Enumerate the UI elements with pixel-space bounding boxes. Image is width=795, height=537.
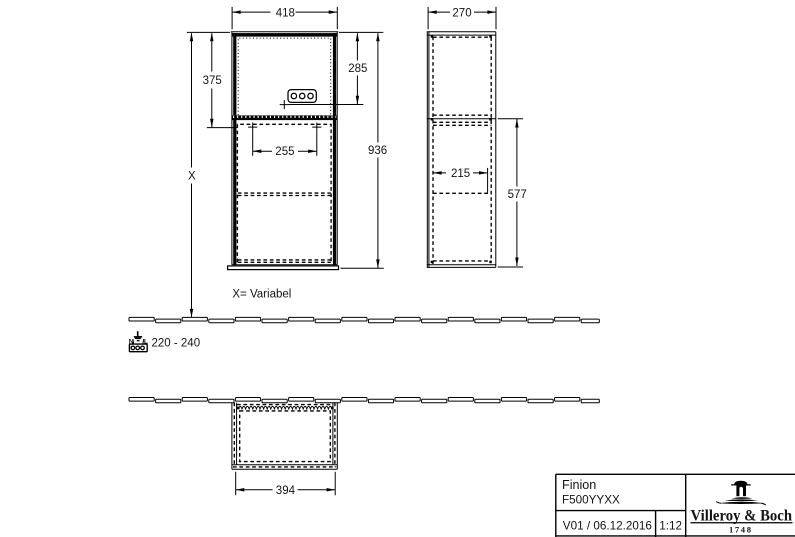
svg-text:577: 577 [508, 189, 527, 201]
svg-text:X= Variabel: X= Variabel [232, 289, 291, 301]
svg-text:215: 215 [451, 168, 470, 180]
svg-text:220 - 240: 220 - 240 [152, 337, 201, 349]
svg-text:V01 / 06.12.2016: V01 / 06.12.2016 [563, 519, 652, 532]
svg-text:270: 270 [452, 7, 471, 19]
svg-text:F500YYXX: F500YYXX [562, 494, 620, 507]
svg-text:375: 375 [203, 75, 222, 87]
svg-text:X: X [188, 171, 196, 183]
svg-text:Finion: Finion [562, 478, 596, 492]
svg-text:1748: 1748 [729, 524, 753, 534]
svg-text:1:12: 1:12 [659, 519, 682, 532]
svg-text:418: 418 [276, 7, 295, 19]
svg-text:255: 255 [275, 146, 294, 158]
svg-text:Villeroy & Boch: Villeroy & Boch [691, 507, 793, 524]
svg-text:285: 285 [348, 63, 367, 75]
svg-text:394: 394 [276, 485, 296, 497]
svg-text:936: 936 [368, 145, 387, 157]
